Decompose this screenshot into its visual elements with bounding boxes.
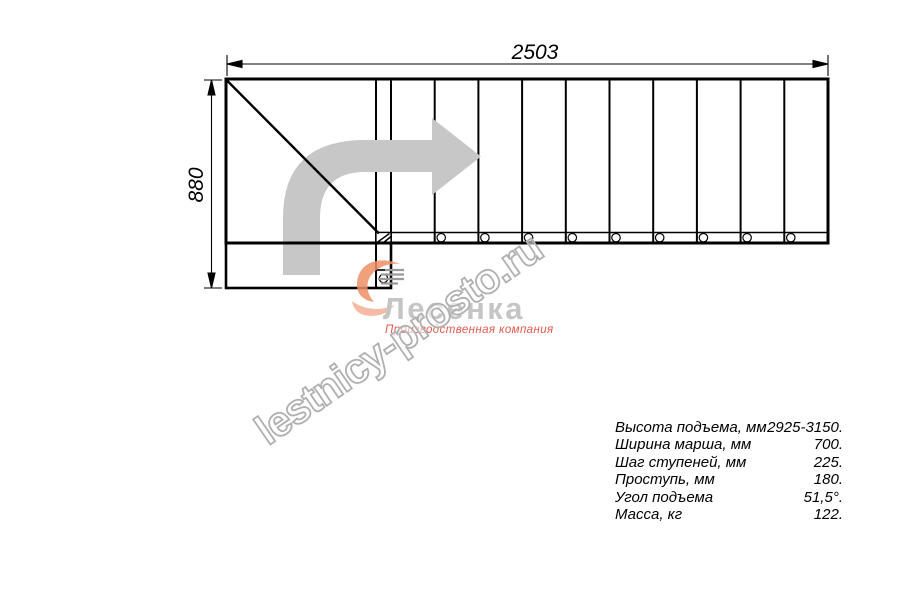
baluster-circles <box>379 234 795 283</box>
dimension-top <box>227 55 828 76</box>
dimension-left <box>204 80 222 288</box>
page: { "page": { "background": "#ffffff" }, "… <box>0 0 900 600</box>
logo-steps-icon <box>378 270 404 284</box>
